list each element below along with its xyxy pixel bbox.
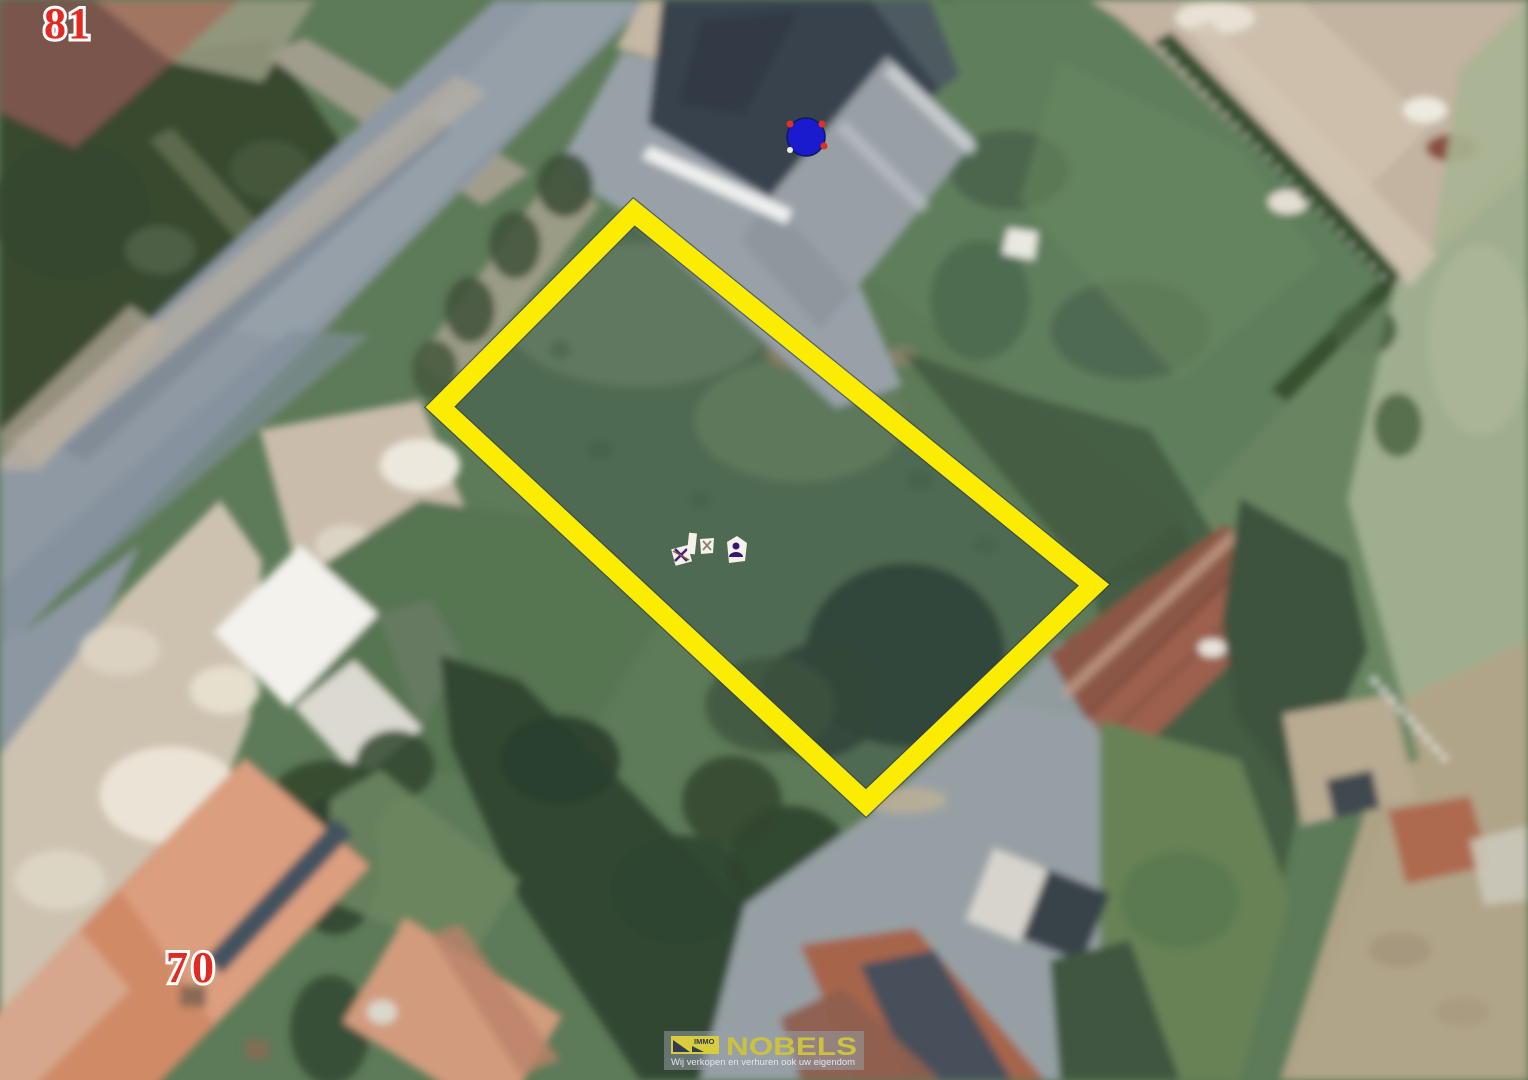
svg-text:70: 70 bbox=[166, 943, 218, 992]
svg-text:IMMO: IMMO bbox=[694, 1037, 715, 1046]
svg-text:Wij verkopen en verhuren ook u: Wij verkopen en verhuren ook uw eigendom bbox=[671, 1057, 855, 1067]
svg-text:81: 81 bbox=[44, 0, 92, 48]
